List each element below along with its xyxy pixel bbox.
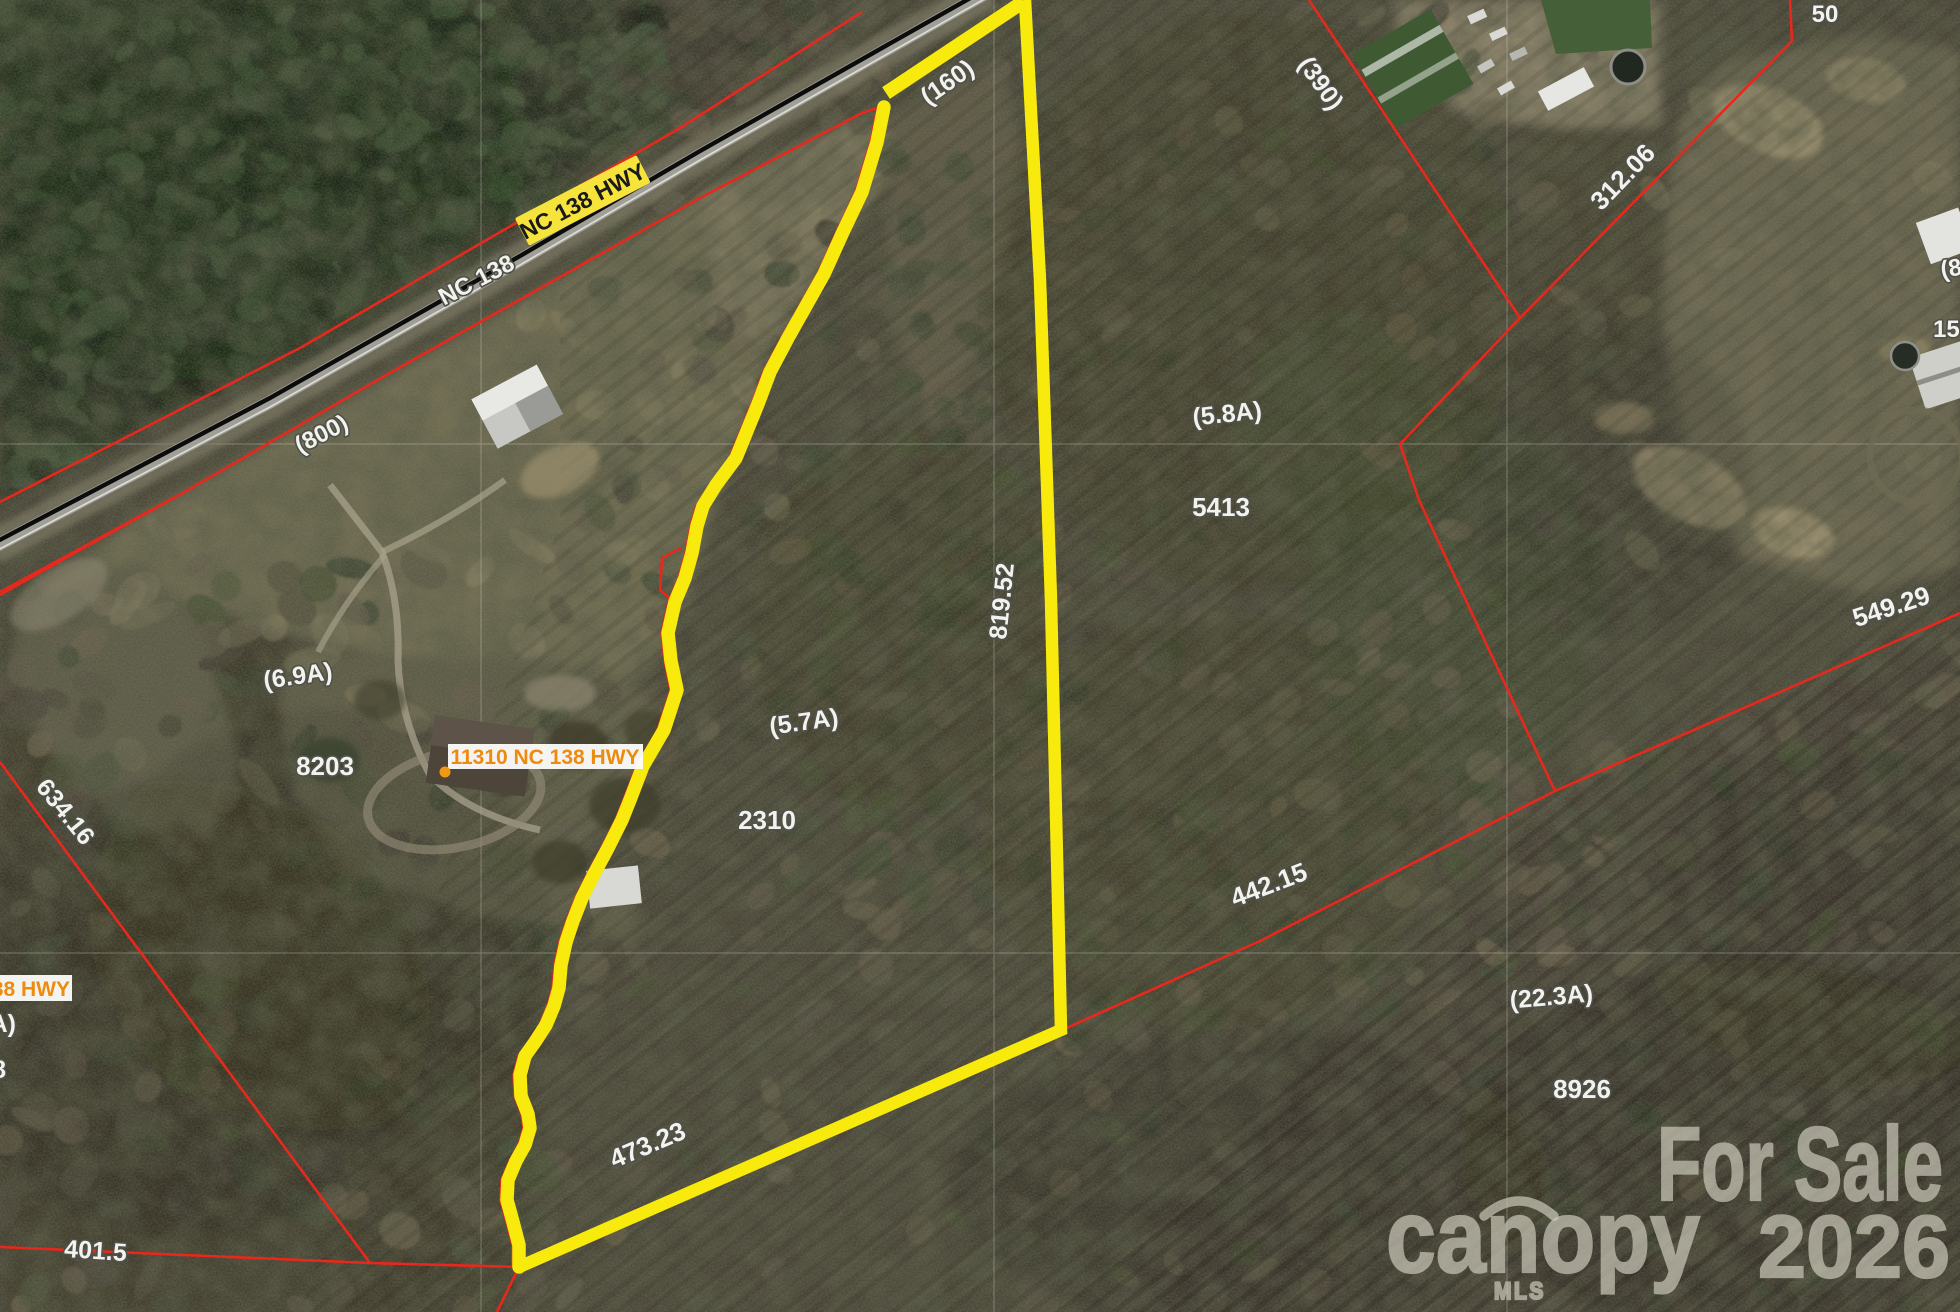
svg-text:38 HWY: 38 HWY <box>0 978 70 1001</box>
svg-text:15: 15 <box>1933 316 1960 343</box>
svg-text:8926: 8926 <box>1553 1074 1611 1104</box>
svg-text:MLS: MLS <box>1494 1278 1546 1305</box>
svg-text:8203: 8203 <box>296 751 354 781</box>
svg-text:5413: 5413 <box>1192 492 1250 522</box>
svg-text:2026: 2026 <box>1758 1197 1950 1296</box>
svg-text:11310 NC 138 HWY: 11310 NC 138 HWY <box>450 746 639 769</box>
svg-text:8: 8 <box>0 1056 6 1084</box>
svg-text:2310: 2310 <box>738 805 796 835</box>
svg-text:A): A) <box>0 1010 16 1038</box>
svg-text:50: 50 <box>1812 1 1839 28</box>
svg-text:401.5: 401.5 <box>63 1235 127 1267</box>
